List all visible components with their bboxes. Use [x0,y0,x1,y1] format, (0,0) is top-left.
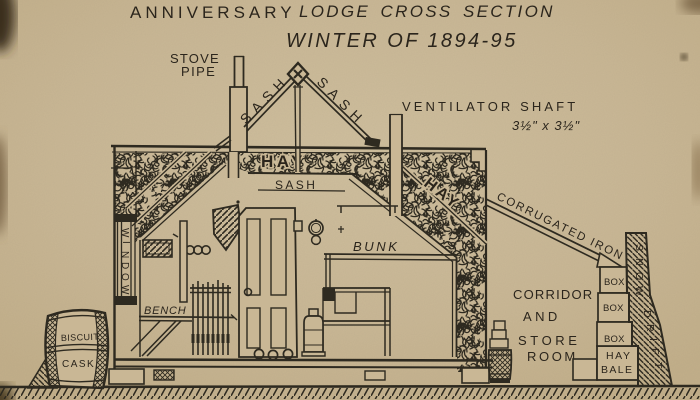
svg-text:STORE: STORE [518,333,581,348]
svg-text:T: T [652,362,664,369]
svg-text:ANNIVERSARY: ANNIVERSARY [130,3,296,22]
svg-text:BOX: BOX [604,277,625,288]
svg-text:ROOM: ROOM [527,349,578,364]
svg-text:F: F [649,348,661,354]
svg-text:BOX: BOX [603,303,624,314]
svg-text:N: N [633,258,645,266]
svg-text:R: R [644,324,656,332]
svg-text:SASH: SASH [275,178,317,192]
svg-text:BISCUIT: BISCUIT [61,332,100,343]
svg-text:3½" x 3½": 3½" x 3½" [512,118,580,133]
svg-text:W: W [119,228,130,238]
svg-text:D: D [641,310,653,318]
svg-text:N: N [119,251,130,258]
svg-text:PIPE: PIPE [181,64,216,79]
svg-text:BUNK: BUNK [353,239,400,254]
svg-text:I: I [120,241,131,244]
svg-text:LODGE CROSS SECTION: LODGE CROSS SECTION [299,2,555,21]
svg-text:BOX: BOX [604,334,625,345]
svg-text:O: O [633,272,645,280]
svg-text:O: O [119,273,130,281]
svg-text:S: S [633,244,645,251]
svg-text:W: W [119,285,130,295]
svg-text:BALE: BALE [601,364,633,376]
svg-text:CORRIDOR: CORRIDOR [513,287,593,302]
svg-text:BENCH: BENCH [144,305,187,317]
svg-text:W: W [633,286,645,296]
svg-text:VENTILATOR SHAFT: VENTILATOR SHAFT [402,99,578,114]
svg-text:WINTER OF 1894-95: WINTER OF 1894-95 [286,30,518,52]
svg-text:I: I [647,338,659,341]
svg-text:AND: AND [523,309,561,324]
svg-text:D: D [119,262,130,269]
svg-text:HAY: HAY [606,350,632,362]
svg-text:CASK: CASK [62,359,95,370]
